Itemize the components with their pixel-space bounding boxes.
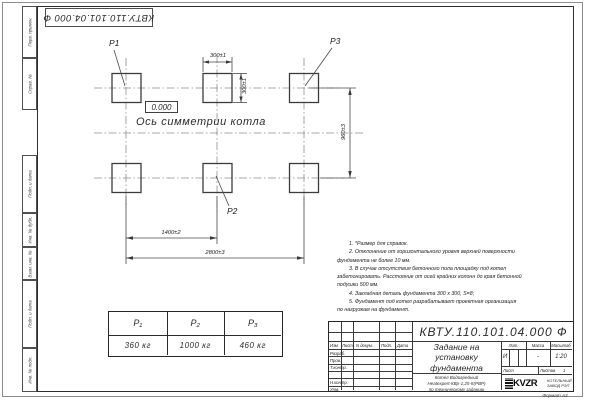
note-line: подушки 500 мм. [337, 281, 583, 289]
tb-title-line: Задание на [412, 342, 501, 352]
format-label: Формат А3 [520, 393, 590, 398]
tb-drawing-subtitle: Котел Водогрейный Heatexpert-КВр-1,25-К(… [412, 374, 501, 393]
tb-lit-label: Лит. [501, 343, 526, 348]
kvzr-emblem-icon [505, 378, 513, 389]
tb-mass-label: Масса [526, 343, 550, 348]
tb-line [329, 356, 412, 357]
tb-col-podp: Подп. [381, 343, 392, 348]
tb-line [329, 371, 412, 372]
drawing-sheet: Перв. примен. Справ. № Подп. и дата Инв.… [0, 0, 600, 400]
tb-col-doc: N докум. [356, 343, 373, 348]
anchor-label-p2: P2 [227, 206, 237, 216]
leader-p1 [114, 50, 125, 86]
anchor-label-p3: P3 [330, 36, 340, 46]
tb-line [538, 366, 539, 374]
table-value-p3: 460 кг [224, 335, 282, 356]
table-value-p1: 360 кг [109, 335, 167, 356]
table-value-p2: 1000 кг [167, 335, 225, 356]
tb-row-razrab: Разраб. [330, 351, 345, 356]
dim-row-spacing: 960±3 [341, 117, 347, 147]
tb-col-data: Дата [397, 343, 408, 348]
note-line: 4. Закладная деталь фундамента 300 х 300… [337, 290, 583, 298]
tb-scale-value: 1:20 [550, 354, 572, 360]
tb-scale-label: Масштаб [550, 343, 572, 348]
tb-title-line: установку [412, 352, 501, 362]
tb-sheets-label: Листов [540, 368, 555, 373]
tb-line [329, 332, 412, 333]
note-line: забетонировать. Расстояние от осей крайн… [337, 273, 583, 281]
tb-line [509, 349, 510, 366]
tb-row-utv: Утв. [330, 387, 340, 392]
note-line: по нагрузкам на фундамент. [337, 306, 583, 314]
load-table: P₁ P₂ P₃ 360 кг 1000 кг 460 кг [108, 311, 283, 357]
centerlines [94, 55, 365, 212]
table-header-p1: P₁ [109, 312, 167, 335]
dim-pad-height: 300±1 [242, 71, 248, 101]
kvzr-logo: KVZR [505, 377, 545, 390]
elevation-value: 0.000 [151, 103, 171, 112]
tb-mass-value: - [526, 354, 550, 360]
table-header-p3: P₃ [224, 312, 282, 335]
tb-line [518, 349, 519, 366]
kvzr-logo-text: KVZR [513, 378, 537, 389]
tb-lit-value: И [501, 354, 509, 360]
tb-row-nkontr: Н.контр. [330, 380, 348, 385]
tb-subtitle-line: по техническому заданию [412, 387, 501, 393]
company-name: КОТЕЛЬНЫЙ ЗАВОД РЭП [547, 378, 572, 388]
anchor-label-p1: P1 [109, 38, 119, 48]
tb-doc-number: КВТУ.110.101.04.000 Ф [412, 322, 575, 341]
dim-pad-width: 300±1 [201, 53, 235, 59]
tb-drawing-title: Задание на установку фундамента [412, 342, 501, 373]
symmetry-axis-label: Ось симметрии котла [136, 116, 266, 128]
tb-line [501, 349, 572, 350]
note-line: 2. Отклонение от горизонтального уровня … [337, 248, 583, 256]
company-line: ЗАВОД РЭП [547, 383, 572, 388]
tb-col-izm: Изм [330, 343, 338, 348]
technical-notes: 1. *Размер для справок. 2. Отклонение от… [337, 240, 583, 315]
tb-line [501, 366, 572, 367]
tb-line [501, 374, 572, 375]
leader-p2 [216, 176, 229, 206]
note-line: 3. В случае отсутствия бетонного пола пл… [337, 265, 583, 273]
dim-total-span: 2800±3 [195, 250, 235, 256]
tb-row-prov: Пров. [330, 358, 341, 363]
tb-sheets-value: 1 [563, 368, 565, 373]
note-line: 5. Фундамент под котел разрабатывает про… [337, 298, 583, 306]
title-block: Изм Лист N докум. Подп. Дата Разраб. Про… [328, 321, 574, 392]
tb-line [329, 386, 412, 387]
tb-row-tkontr: Т.контр. [330, 365, 347, 370]
note-line: 1. *Размер для справок. [337, 240, 583, 248]
note-line: фундамента не более 10 мм. [337, 257, 583, 265]
elevation-mark: 0.000 [145, 101, 178, 113]
tb-title-line: фундамента [412, 363, 501, 373]
tb-sheet-label: Лист [503, 368, 514, 373]
table-header-p2: P₂ [167, 312, 225, 335]
dim-col-spacing: 1400±2 [151, 230, 191, 236]
tb-col-list: Лист [342, 343, 353, 348]
